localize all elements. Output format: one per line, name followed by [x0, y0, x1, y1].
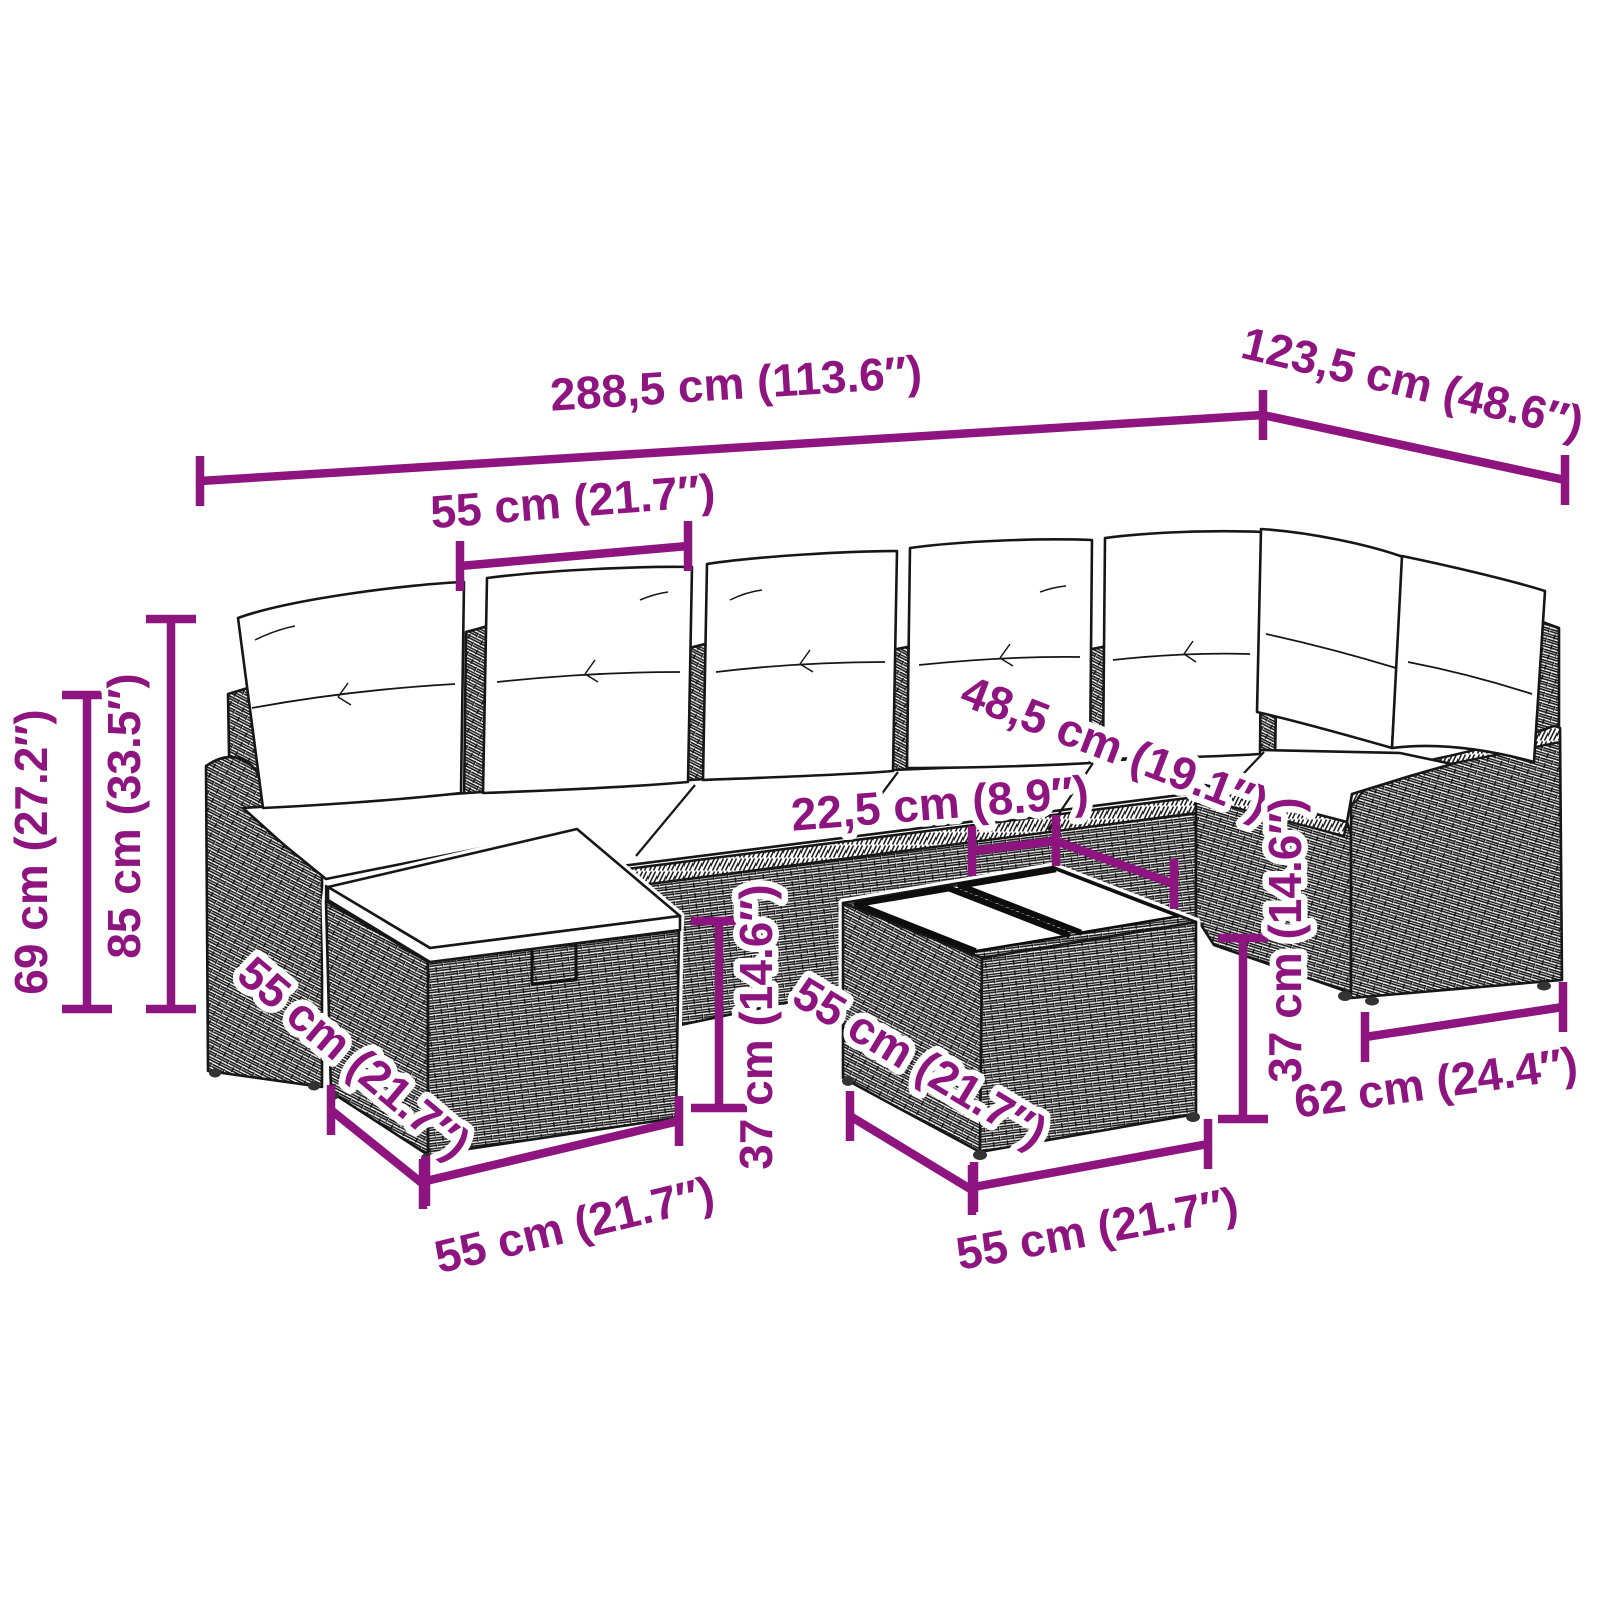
svg-text:69 cm (27.2″): 69 cm (27.2″)	[5, 709, 57, 994]
svg-text:37 cm (14.6″): 37 cm (14.6″)	[1259, 797, 1311, 1082]
svg-text:85 cm (33.5″): 85 cm (33.5″)	[98, 673, 150, 958]
svg-text:37 cm (14.6″): 37 cm (14.6″)	[730, 884, 782, 1169]
